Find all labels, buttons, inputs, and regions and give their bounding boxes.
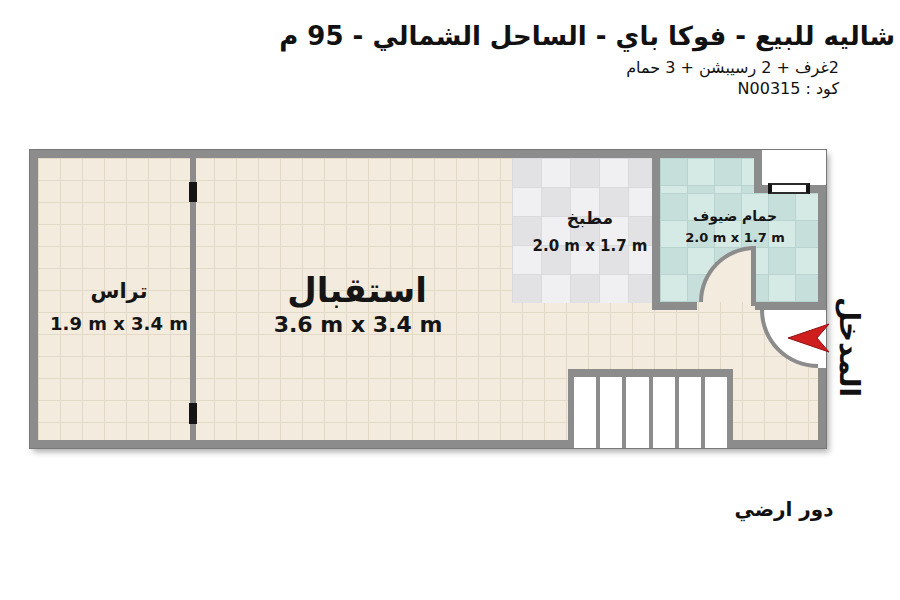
room-dims-kitchen: 2.0 m x 1.7 m <box>533 237 648 255</box>
stairs <box>568 369 733 448</box>
room-label-kitchen: مطبخ <box>567 208 613 228</box>
kitchen-floor-area <box>512 158 652 303</box>
stair-tread <box>653 377 675 448</box>
bathroom-wall <box>652 158 660 310</box>
room-label-terrace: تراس <box>90 279 147 303</box>
bathroom-wall <box>652 302 697 310</box>
sliding-door-marker <box>189 403 197 424</box>
room-label-reception: استقبال <box>287 270 427 310</box>
floor-plan: تراس 1.9 m x 3.4 m استقبال 3.6 m x 3.4 m… <box>30 150 826 448</box>
entrance-arrow-icon <box>783 322 833 356</box>
bathroom-floor-area <box>660 158 754 193</box>
window-symbol <box>768 183 810 194</box>
stair-tread <box>679 377 701 448</box>
listing-code: كود : N00315 <box>738 79 839 98</box>
stair-tread <box>705 377 727 448</box>
room-dims-reception: 3.6 m x 3.4 m <box>274 312 443 337</box>
exterior-notch <box>762 150 826 185</box>
bathroom-door-leaf <box>751 246 756 306</box>
floor-level-label: دور ارضي <box>734 497 833 521</box>
page-title: شاليه للبيع - فوكا باي - الساحل الشمالي … <box>279 20 895 53</box>
bathroom-wall <box>755 302 826 310</box>
room-label-guest-bathroom: حمام ضيوف <box>693 208 777 224</box>
room-dims-guest-bathroom: 2.0 m x 1.7 m <box>685 230 785 245</box>
stair-tread <box>574 377 596 448</box>
sliding-door-marker <box>189 182 197 202</box>
stair-tread <box>600 377 622 448</box>
room-dims-terrace: 1.9 m x 3.4 m <box>50 313 188 334</box>
listing-summary: 2غرف + 2 رسيبشن + 3 حمام <box>626 58 839 77</box>
entrance-label: المدخل <box>833 297 866 397</box>
stair-tread <box>626 377 648 448</box>
